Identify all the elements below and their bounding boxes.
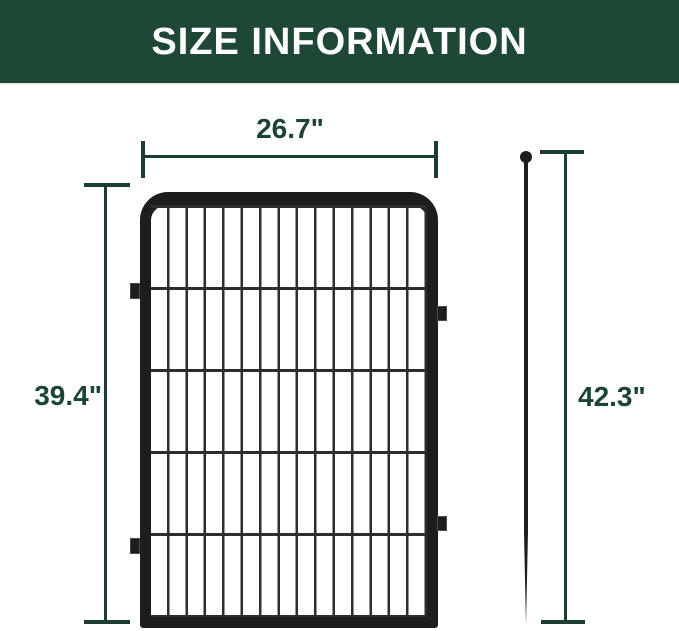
fence-connector-tab-left-bottom — [130, 538, 140, 554]
fence-panel-illustration — [140, 192, 438, 628]
stake-height-label: 42.3" — [578, 382, 646, 413]
panel-height-label: 39.4" — [8, 381, 102, 412]
panel-width-cap-left — [141, 141, 145, 178]
ground-stake-illustration — [524, 162, 528, 625]
stake-height-cap-bottom — [541, 620, 585, 624]
stake-height-cap-top — [540, 150, 584, 154]
fence-wire-mesh — [151, 205, 427, 617]
size-information-diagram: SIZE INFORMATION 26.7" 39.4" 42.3" — [0, 0, 679, 631]
header-banner: SIZE INFORMATION — [0, 0, 679, 85]
panel-width-label: 26.7" — [190, 114, 390, 145]
panel-height-dimension-line — [104, 185, 107, 623]
fence-connector-tab-right-top — [437, 306, 447, 321]
fence-connector-tab-right-bottom — [437, 516, 447, 531]
page-title: SIZE INFORMATION — [151, 23, 527, 61]
panel-width-dimension-line — [143, 155, 438, 158]
panel-height-cap-top — [84, 183, 130, 187]
panel-width-cap-right — [434, 141, 438, 178]
fence-connector-tab-left-top — [130, 283, 140, 299]
stake-height-dimension-line — [564, 152, 567, 623]
panel-height-cap-bottom — [84, 620, 130, 624]
stake-ball-top — [520, 151, 532, 163]
